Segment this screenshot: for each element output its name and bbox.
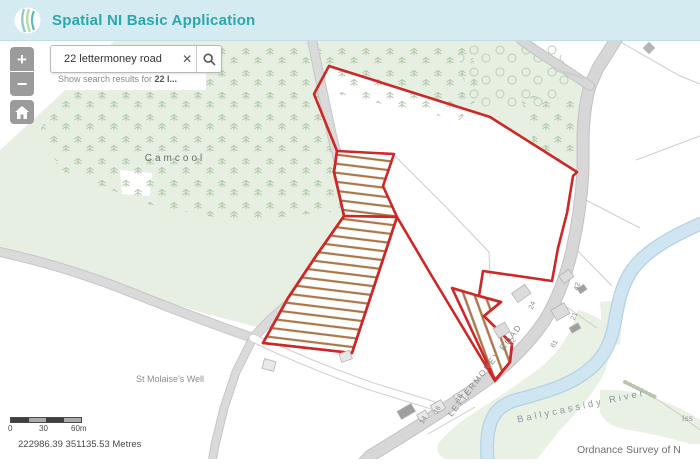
attribution: Ordnance Survey of N xyxy=(577,444,700,462)
app-title: Spatial NI Basic Application xyxy=(52,12,255,29)
search-button[interactable] xyxy=(197,46,221,72)
well-label: St Molaise's Well xyxy=(136,374,204,384)
scale-tick-60: 60m xyxy=(71,424,87,433)
zoom-in-button[interactable]: + xyxy=(10,47,34,71)
townland-label: Camcool xyxy=(145,153,205,164)
hint-term: 22 l... xyxy=(155,74,178,84)
scale-tick-0: 0 xyxy=(8,424,12,433)
home-icon xyxy=(15,106,29,119)
zoom-out-button[interactable]: − xyxy=(10,72,34,96)
home-button[interactable] xyxy=(10,100,34,124)
search-icon xyxy=(203,53,216,66)
coordinate-readout: 222986.39 351135.53 Metres xyxy=(18,439,141,450)
clear-search-icon[interactable]: ✕ xyxy=(178,52,196,66)
scale-tick-30: 30 xyxy=(39,424,48,433)
app-header: Spatial NI Basic Application xyxy=(0,0,700,41)
search-box: ✕ xyxy=(50,45,222,73)
search-results-hint[interactable]: Show search results for 22 l... xyxy=(50,72,206,90)
scale-bar xyxy=(10,417,82,423)
search-input[interactable] xyxy=(62,52,178,66)
spatial-ni-app: Camcool St Molaise's Well LETTERMONEY RO… xyxy=(0,0,700,469)
hint-prefix: Show search results for xyxy=(58,74,155,84)
issues-label: Iss xyxy=(682,413,693,423)
osni-logo xyxy=(14,7,41,34)
